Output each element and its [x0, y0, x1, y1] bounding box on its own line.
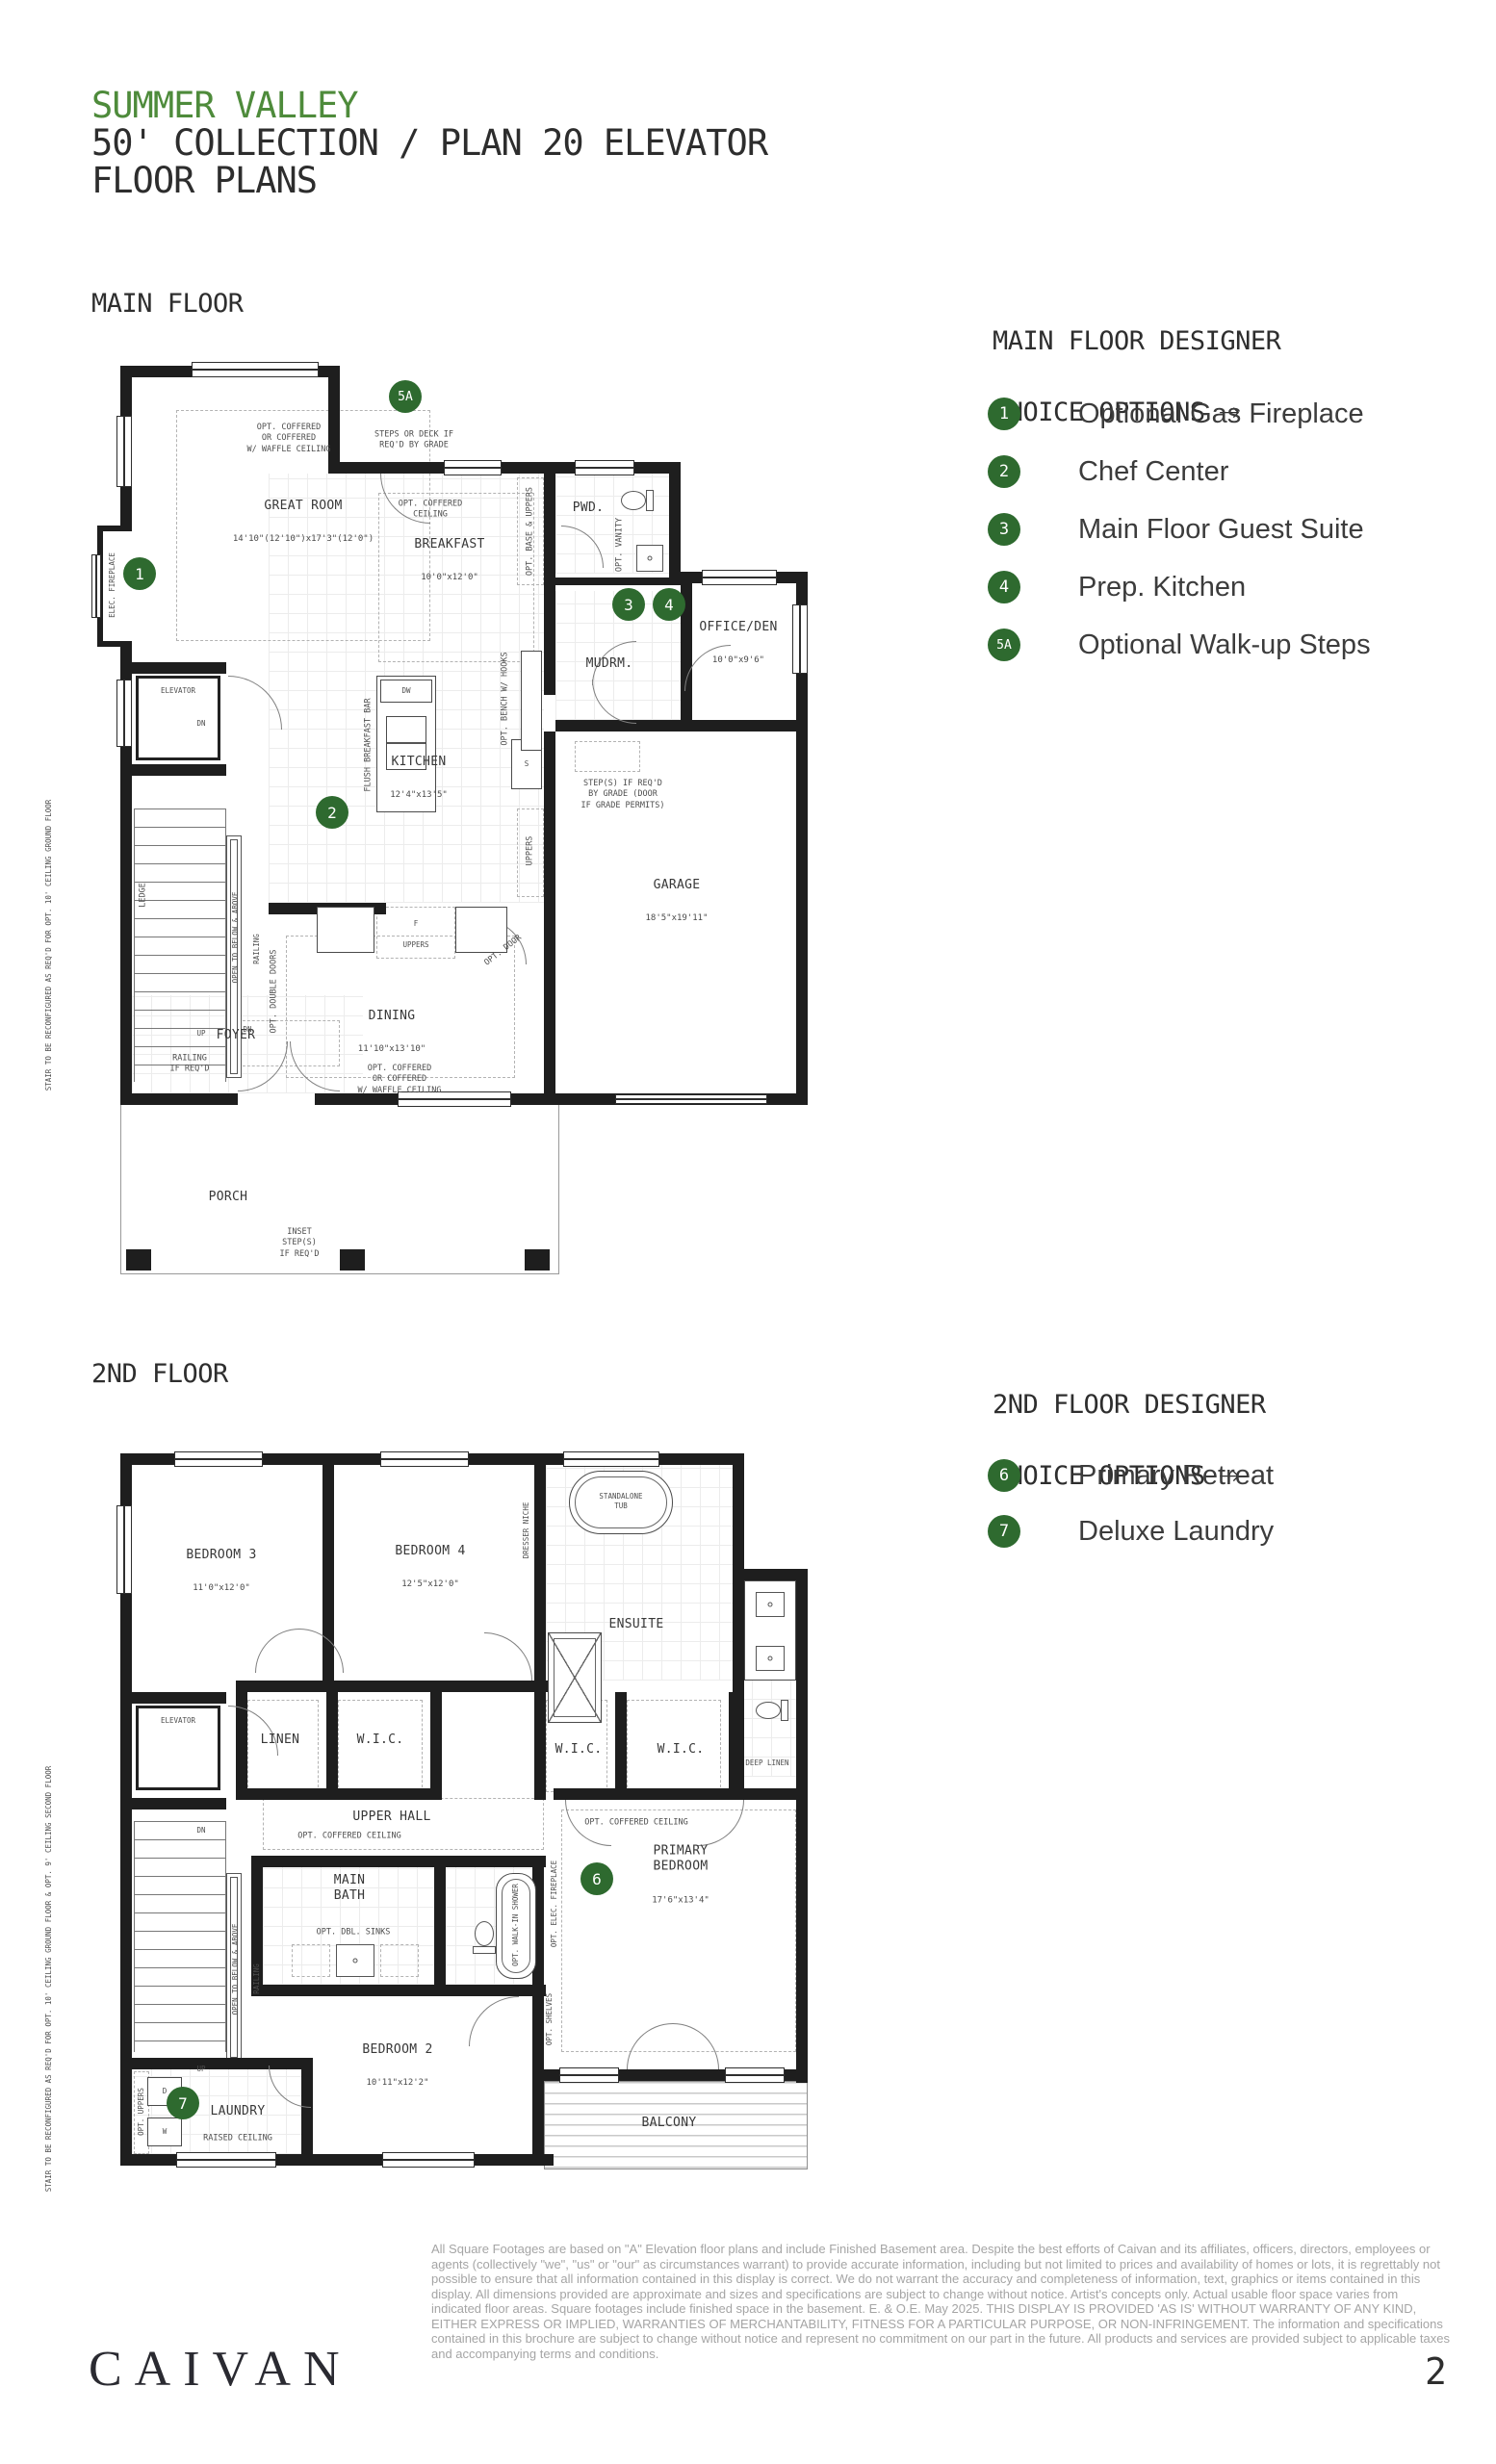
room-label-ensuite: ENSUITE [609, 1598, 664, 1652]
wall-segment [120, 764, 226, 776]
wall-segment [120, 662, 226, 674]
option-marker-2: 2 [316, 796, 348, 829]
steps-outline [575, 741, 640, 772]
note-elec-fireplace: OPT. ELEC. FIREPLACE [550, 1861, 559, 1947]
wall-segment [733, 1453, 744, 1578]
wall-segment [554, 1788, 808, 1800]
option-number-badge: 3 [988, 513, 1020, 546]
wall-segment [120, 1093, 238, 1105]
note-opt-shelves: OPT. SHELVES [545, 1993, 555, 2045]
door-swing [484, 1632, 532, 1681]
note-ledge: LEDGE [138, 883, 148, 908]
option-number-badge: 5A [988, 629, 1020, 661]
room-label-bedroom4: BEDROOM 4 12'5"x12'0" [395, 1525, 465, 1610]
elevator-label: ELEVATOR [161, 686, 195, 696]
bath-sink [336, 1944, 374, 1977]
vanity-sink [636, 545, 663, 572]
wall-segment [120, 643, 132, 664]
note-stair-reconfig: STAIR TO BE RECONFIGURED AS REQ'D FOR OP… [44, 1766, 54, 2193]
window [725, 2067, 785, 2083]
staircase [134, 808, 226, 1082]
note-elec-fireplace: ELEC. FIREPLACE [108, 552, 117, 618]
porch-column [340, 1249, 365, 1270]
option-number-badge: 1 [988, 398, 1020, 430]
wall-segment [555, 720, 796, 731]
room-label-office-den: OFFICE/DEN 10'0"x9'6" [699, 601, 777, 686]
window [176, 2152, 276, 2168]
wall-segment [733, 1580, 744, 1788]
window [702, 570, 777, 585]
option-item-5a: 5A Optional Walk-up Steps [988, 629, 1371, 661]
option-item-2: 2 Chef Center [988, 455, 1228, 488]
toilet [475, 1921, 494, 1946]
note-hall-ceiling: OPT. COFFERED CEILING [297, 1831, 400, 1841]
brochure-page: SUMMER VALLEY 50' COLLECTION / PLAN 20 E… [0, 0, 1496, 2464]
note-raised-ceiling: RAISED CEILING [203, 2133, 272, 2143]
room-label-linen: LINEN [261, 1713, 300, 1767]
note-opt-vanity: OPT. VANITY [614, 518, 625, 572]
window [444, 460, 502, 475]
option-marker-4: 4 [653, 588, 685, 621]
vanity-sink [756, 1592, 785, 1617]
window [575, 460, 634, 475]
window [116, 680, 132, 747]
window [559, 2067, 619, 2083]
wall-segment [236, 1681, 554, 1692]
option-item-6: 6 Primary Retreat [988, 1459, 1274, 1492]
plan-title-line2: FLOOR PLANS [91, 162, 767, 199]
note-stair-reconfig: STAIR TO BE RECONFIGURED AS REQ'D FOR OP… [44, 800, 54, 1091]
door-swing [255, 1629, 299, 1673]
note-railing-req: RAILING IF REQ'D [170, 1054, 210, 1076]
note-opt-uppers: OPT. UPPERS [137, 2088, 146, 2136]
room-label-great-room: GREAT ROOM 14'10"(12'10")x17'3"(12'0") [233, 479, 374, 565]
note-dbl-sinks: OPT. DBL. SINKS [317, 1927, 391, 1938]
window [192, 362, 319, 377]
note-dresser-niche: DRESSER NICHE [522, 1502, 531, 1559]
window [116, 1505, 132, 1594]
wall-segment [669, 462, 681, 583]
wall-segment [120, 1692, 226, 1704]
wall-segment [120, 1692, 132, 2166]
vanity-sink [756, 1646, 785, 1671]
cabinet-outline [376, 907, 455, 959]
page-number: 2 [1425, 2350, 1447, 2393]
option-marker-6: 6 [580, 1862, 613, 1895]
room-label-wic: W.I.C. [555, 1723, 603, 1777]
note-inset-steps: INSET STEP(S) IF REQ'D [280, 1227, 320, 1260]
option-item-1: 1 Optional Gas Fireplace [988, 398, 1364, 430]
room-label-bedroom3: BEDROOM 3 11'0"x12'0" [186, 1528, 256, 1614]
note-walkin-shower: OPT. WALK-IN SHOWER [511, 1884, 521, 1966]
caivan-logo: CAIVAN [89, 2341, 352, 2398]
main-floor-plan: ELEVATOR GREAT ROOM 14'10"(12'10")x17'3"… [91, 356, 823, 1280]
door-swing [469, 1996, 519, 2046]
toilet-tank [646, 490, 654, 511]
note-dbl-doors: OPT. DOUBLE DOORS [269, 950, 279, 1034]
room-label-wic: W.I.C. [357, 1713, 404, 1767]
note-stove: S [525, 759, 529, 769]
note-steps-grade: STEP(S) IF REQ'D BY GRADE (DOOR IF GRADE… [581, 779, 665, 811]
option-marker-3: 3 [612, 588, 645, 621]
wall-segment [328, 366, 340, 474]
note-great-ceiling: OPT. COFFERED OR COFFERED W/ WAFFLE CEIL… [247, 423, 331, 455]
note-washer: W [163, 2127, 168, 2137]
optional-sink-outline [292, 1944, 330, 1977]
room-label-breakfast: BREAKFAST 10'0"x12'0" [414, 518, 484, 603]
wall-segment [326, 1692, 338, 1800]
optional-sink-outline [380, 1944, 419, 1977]
option-item-3: 3 Main Floor Guest Suite [988, 513, 1364, 546]
option-item-7: 7 Deluxe Laundry [988, 1515, 1274, 1548]
toilet [621, 491, 646, 510]
note-flush-bar: FLUSH BREAKFAST BAR [363, 698, 374, 791]
note-up-stairs: UP [196, 2065, 205, 2074]
wall-segment [796, 1569, 808, 2083]
room-label-kitchen: KITCHEN 12'4"x13'5" [390, 735, 448, 821]
door-swing [299, 1629, 344, 1673]
room-label-dining: DINING 11'10"x13'10" [358, 989, 426, 1075]
room-label-porch: PORCH [209, 1170, 248, 1224]
window [382, 2152, 475, 2168]
note-open-below: OPEN TO BELOW & ABOVE [231, 892, 241, 984]
second-floor-plan: ELEVATOR BEDROOM 3 11'0"x12'0" [91, 1444, 823, 2175]
mudroom-bench [521, 651, 542, 751]
wall-segment [120, 1798, 226, 1809]
room-label-foyer: FOYER [217, 1009, 256, 1063]
note-uppers-2: UPPERS [525, 836, 535, 866]
window [792, 604, 808, 674]
main-floor-heading: MAIN FLOOR [91, 289, 244, 319]
option-number-badge: 7 [988, 1515, 1020, 1548]
porch-column [525, 1249, 550, 1270]
note-dn-foyer: DN [243, 1025, 251, 1035]
note-base-uppers: OPT. BASE & UPPERS [525, 487, 535, 576]
note-dryer: D [163, 2087, 168, 2096]
note-primary-ceiling: OPT. COFFERED CEILING [584, 1817, 687, 1828]
option-item-4: 4 Prep. Kitchen [988, 571, 1246, 603]
note-uppers: UPPERS [402, 940, 428, 950]
room-label-garage: GARAGE 18'5"x19'11" [645, 859, 708, 944]
note-dw: DW [401, 686, 410, 696]
wall-segment [534, 1465, 546, 1692]
window [563, 1451, 659, 1467]
page-title: SUMMER VALLEY 50' COLLECTION / PLAN 20 E… [91, 87, 767, 199]
room-label-primary-bedroom: PRIMARY BEDROOM 17'6"x13'4" [652, 1825, 709, 1926]
community-name: SUMMER VALLEY [91, 87, 767, 124]
staircase [134, 1821, 226, 2052]
note-dn-stairs: DN [196, 719, 205, 729]
wall-segment [430, 1692, 442, 1800]
garage-door [615, 1094, 767, 1104]
note-fridge: F [414, 919, 419, 929]
option-number-badge: 6 [988, 1459, 1020, 1492]
legal-disclaimer: All Square Footages are based on "A" Ele… [431, 2242, 1450, 2361]
note-open-below: OPEN TO BELOW & ABOVE [231, 1924, 241, 2015]
room-label-mudroom: MUDRM. [586, 637, 633, 691]
note-steps-deck: STEPS OR DECK IF REQ'D BY GRADE [374, 430, 453, 452]
window [174, 1451, 263, 1467]
porch-column [126, 1249, 151, 1270]
wall-segment [534, 1692, 546, 1800]
room-label-pwd: PWD. [573, 481, 605, 535]
note-up-stairs: UP [196, 1029, 205, 1039]
note-breakfast-ceiling: OPT. COFFERED CEILING [399, 500, 463, 522]
room-label-deep-linen: DEEP LINEN [745, 1758, 788, 1768]
note-standalone-tub: STANDALONE TUB [599, 1492, 642, 1511]
elevator-label: ELEVATOR [161, 1716, 195, 1726]
room-label-main-bath: MAIN BATH [334, 1854, 366, 1924]
wall-segment [615, 1692, 627, 1800]
option-marker-1: 1 [123, 557, 156, 590]
note-dining-ceiling: OPT. COFFERED OR COFFERED W/ WAFFLE CEIL… [358, 1064, 442, 1096]
note-bench: OPT. BENCH W/ HOOKS [500, 652, 510, 745]
second-floor-heading: 2ND FLOOR [91, 1359, 228, 1389]
note-dn-stairs: DN [196, 1826, 205, 1835]
window [380, 1451, 469, 1467]
wall-segment [544, 577, 681, 585]
room-label-wic: W.I.C. [658, 1723, 705, 1777]
option-number-badge: 2 [988, 455, 1020, 488]
window [116, 416, 132, 487]
window [91, 554, 101, 618]
option-marker-5a: 5A [389, 380, 422, 413]
shower [548, 1632, 602, 1723]
wall-segment [434, 1867, 446, 1985]
note-railing: RAILING [252, 1963, 262, 1994]
room-label-bedroom2: BEDROOM 2 10'11"x12'2" [362, 2023, 432, 2109]
toilet-tank [473, 1946, 496, 1954]
counter [317, 907, 374, 953]
note-railing: RAILING [252, 934, 262, 964]
option-number-badge: 4 [988, 571, 1020, 603]
wall-segment [251, 1856, 546, 1867]
wall-segment [251, 1985, 546, 1996]
toilet-tank [781, 1700, 788, 1721]
wall-segment [544, 731, 555, 1105]
toilet [756, 1702, 781, 1719]
plan-title-line: 50' COLLECTION / PLAN 20 ELEVATOR [91, 124, 767, 162]
room-label-balcony: BALCONY [642, 2096, 697, 2150]
option-marker-7: 7 [167, 2087, 199, 2119]
room-label-laundry: LAUNDRY [211, 2085, 266, 2139]
